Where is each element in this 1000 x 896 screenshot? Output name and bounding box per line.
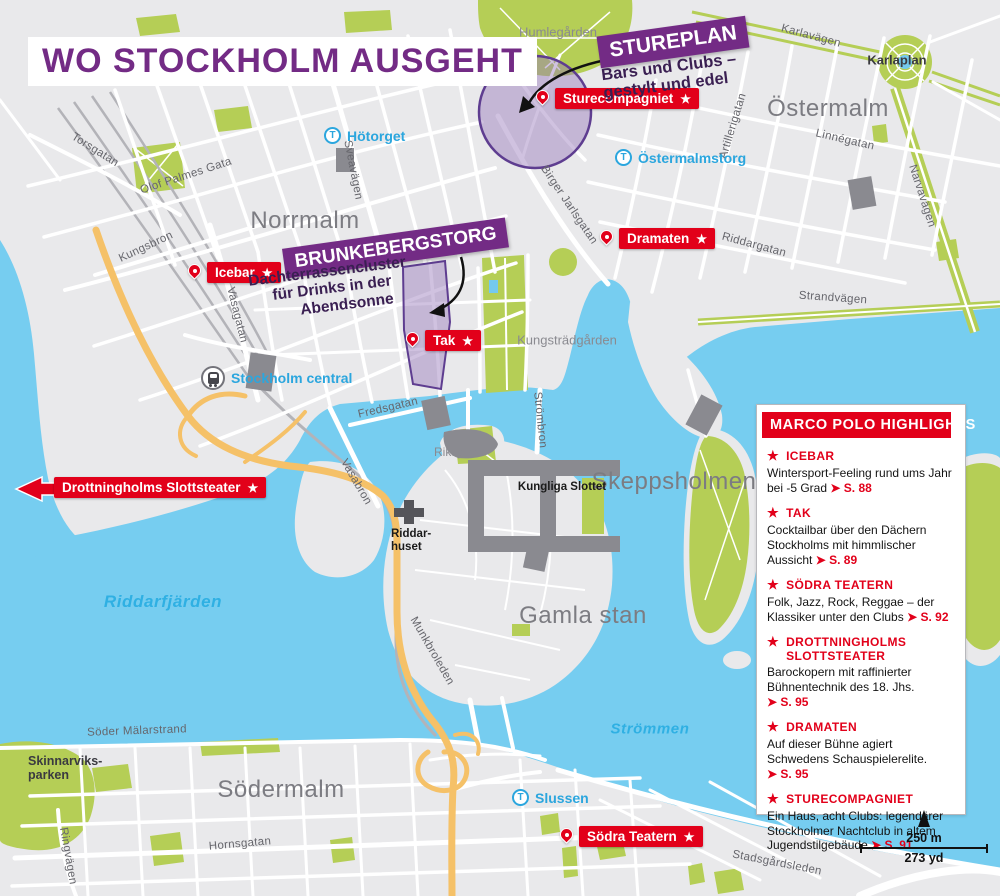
highlight-title: DROTTNINGHOLMS SLOTTSTEATER: [786, 635, 953, 663]
star-icon: ★: [680, 93, 691, 105]
highlight-item-drottningholms: ★DROTTNINGHOLMS SLOTTSTEATER Barockopern…: [757, 634, 965, 709]
poi-label: Södra Teatern: [587, 829, 677, 844]
highlight-item-dramaten: ★DRAMATEN Auf dieser Bühne agiert Schwed…: [757, 719, 965, 781]
highlight-title: SÖDRA TEATERN: [786, 578, 893, 592]
highlight-title: TAK: [786, 506, 811, 520]
page-ref: S. 92: [920, 610, 948, 624]
station-ostermalmstorg[interactable]: T Östermalmstorg: [615, 149, 746, 166]
poi-sturecompagniet[interactable]: Sturecompagniet★: [534, 88, 699, 109]
page-ref: S. 89: [829, 553, 857, 567]
marco-polo-highlights-box: MARCO POLO HIGHLIGHTS ★ICEBAR Winterspor…: [756, 404, 966, 815]
station-hotorget[interactable]: T Hötorget: [324, 127, 405, 144]
highlight-item-tak: ★TAK Cocktailbar über den Dächern Stockh…: [757, 505, 965, 567]
star-icon: ★: [696, 233, 707, 245]
station-label: Östermalmstorg: [638, 150, 746, 166]
poi-label: Drottningholms Slottsteater: [62, 480, 241, 495]
location-pin-icon: [598, 229, 615, 248]
station-slussen[interactable]: T Slussen: [512, 789, 589, 806]
highlight-title: STURECOMPAGNIET: [786, 792, 913, 806]
map-title: WO STOCKHOLM AUSGEHT: [28, 37, 537, 86]
poi-label: Dramaten: [627, 231, 689, 246]
star-icon: ★: [684, 831, 695, 843]
location-pin-icon: [186, 263, 203, 282]
star-icon: ★: [248, 482, 259, 494]
poi-sodra-teatern[interactable]: Södra Teatern★: [558, 826, 703, 847]
metro-icon: T: [615, 149, 632, 166]
arrow-icon: ➤: [830, 481, 840, 495]
kungstradgarden-pond: [489, 280, 498, 293]
star-icon: ★: [767, 634, 779, 650]
star-icon: ★: [767, 719, 779, 735]
metro-icon: T: [324, 127, 341, 144]
location-pin-icon: [558, 827, 575, 846]
scale-line: [860, 847, 988, 849]
location-pin-icon: [404, 331, 421, 350]
star-icon: ★: [262, 267, 273, 279]
metro-icon: T: [512, 789, 529, 806]
arrow-icon: ➤: [767, 695, 777, 709]
karlaplan-pond: [898, 55, 912, 69]
boulevard-strips: [692, 12, 1000, 332]
star-icon: ★: [767, 791, 779, 807]
highlight-item-sodra-teatern: ★SÖDRA TEATERN Folk, Jazz, Rock, Reggae …: [757, 577, 965, 624]
location-pin-icon: [534, 89, 551, 108]
star-icon: ★: [462, 335, 473, 347]
page-ref: S. 88: [844, 481, 872, 495]
poi-icebar[interactable]: Icebar★: [186, 262, 281, 283]
highlight-title: DRAMATEN: [786, 720, 857, 734]
poi-dramaten[interactable]: Dramaten★: [598, 228, 715, 249]
star-icon: ★: [767, 448, 779, 464]
highlight-desc: Auf dieser Bühne agiert Schwedens Schaus…: [767, 737, 927, 766]
highlight-title: ICEBAR: [786, 449, 834, 463]
scale-imperial: 273 yd: [858, 851, 990, 865]
poi-tak[interactable]: Tak★: [404, 330, 481, 351]
station-label: Stockholm central: [231, 370, 352, 386]
arrow-icon: ➤: [767, 767, 777, 781]
poi-label: Icebar: [215, 265, 255, 280]
station-label: Slussen: [535, 790, 589, 806]
star-icon: ★: [767, 577, 779, 593]
station-label: Hötorget: [347, 128, 405, 144]
scale-metric: 250 m: [858, 831, 990, 845]
highlights-header: MARCO POLO HIGHLIGHTS: [762, 412, 951, 438]
highlight-item-icebar: ★ICEBAR Wintersport-Feeling rund ums Jah…: [757, 448, 965, 495]
page-ref: S. 95: [780, 695, 808, 709]
station-stockholm-central[interactable]: Stockholm central: [201, 366, 352, 390]
scale-bar: 250 m 273 yd: [858, 810, 990, 865]
north-arrow-icon: [918, 810, 930, 827]
poi-label: Sturecompagniet: [563, 91, 673, 106]
brunkebergstorg-overlay-polygon: [403, 261, 450, 389]
poi-drottningholms-slottsteater[interactable]: Drottningholms Slottsteater★: [54, 477, 266, 498]
train-station-icon: [201, 366, 225, 390]
page-ref: S. 95: [780, 767, 808, 781]
arrow-icon: ➤: [816, 553, 826, 567]
star-icon: ★: [767, 505, 779, 521]
highlight-desc: Barockopern mit raffinierter Bühnentechn…: [767, 665, 914, 694]
stockholm-nightlife-map: Torsgatan Olof Palmes Gata Kungsbron Sve…: [0, 0, 1000, 896]
poi-label: Tak: [433, 333, 455, 348]
arrow-icon: ➤: [907, 610, 917, 624]
